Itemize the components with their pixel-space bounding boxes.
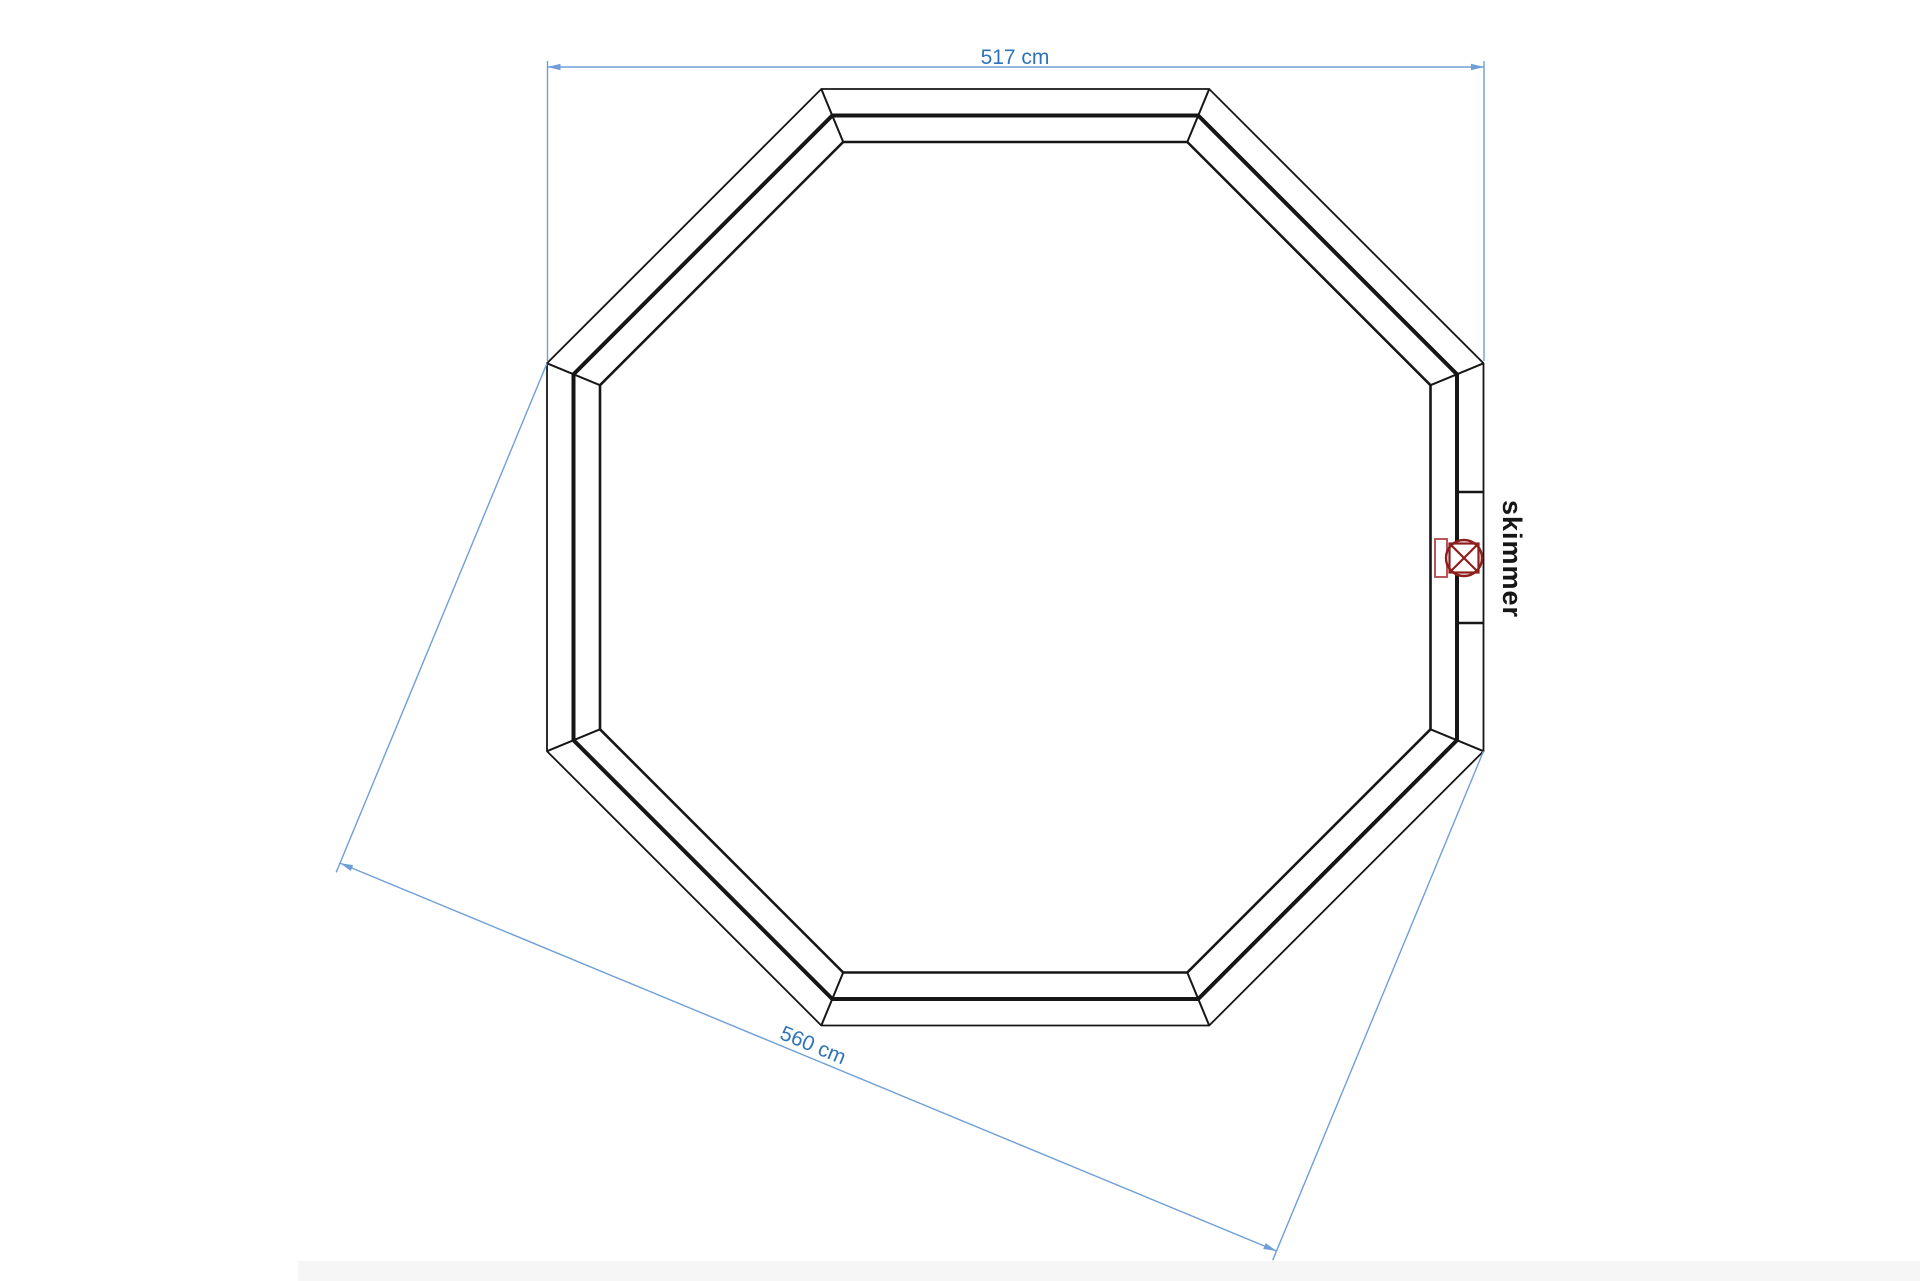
pool-wall-outer-line [547, 89, 1484, 1026]
wall-corner-joints [547, 89, 1484, 1026]
diagonal-dimension: 560 cm [336, 363, 1483, 1260]
diagonal-dimension-extension-right [1273, 751, 1484, 1260]
pool-drawing-page: 517 cm 560 cm skimmer [0, 0, 1920, 1281]
width-dimension-label: 517 cm [981, 46, 1050, 69]
pool-wall-inner-line [600, 142, 1431, 973]
pool-drawing: 517 cm 560 cm skimmer [0, 0, 1920, 1281]
arrow-left-icon [548, 64, 561, 70]
diagonal-dimension-line [340, 863, 1277, 1251]
skimmer-symbol: skimmer [1435, 500, 1527, 618]
page-edge-strip [298, 1261, 1920, 1281]
diagonal-dimension-label: 560 cm [777, 1022, 849, 1070]
width-dimension: 517 cm [548, 46, 1485, 361]
diagonal-dimension-extension-left [336, 363, 547, 872]
pool-walls [547, 89, 1484, 1026]
pool-wall-middle-line [574, 116, 1458, 1000]
skimmer-label: skimmer [1497, 500, 1527, 618]
arrow-right-icon [1471, 64, 1484, 70]
